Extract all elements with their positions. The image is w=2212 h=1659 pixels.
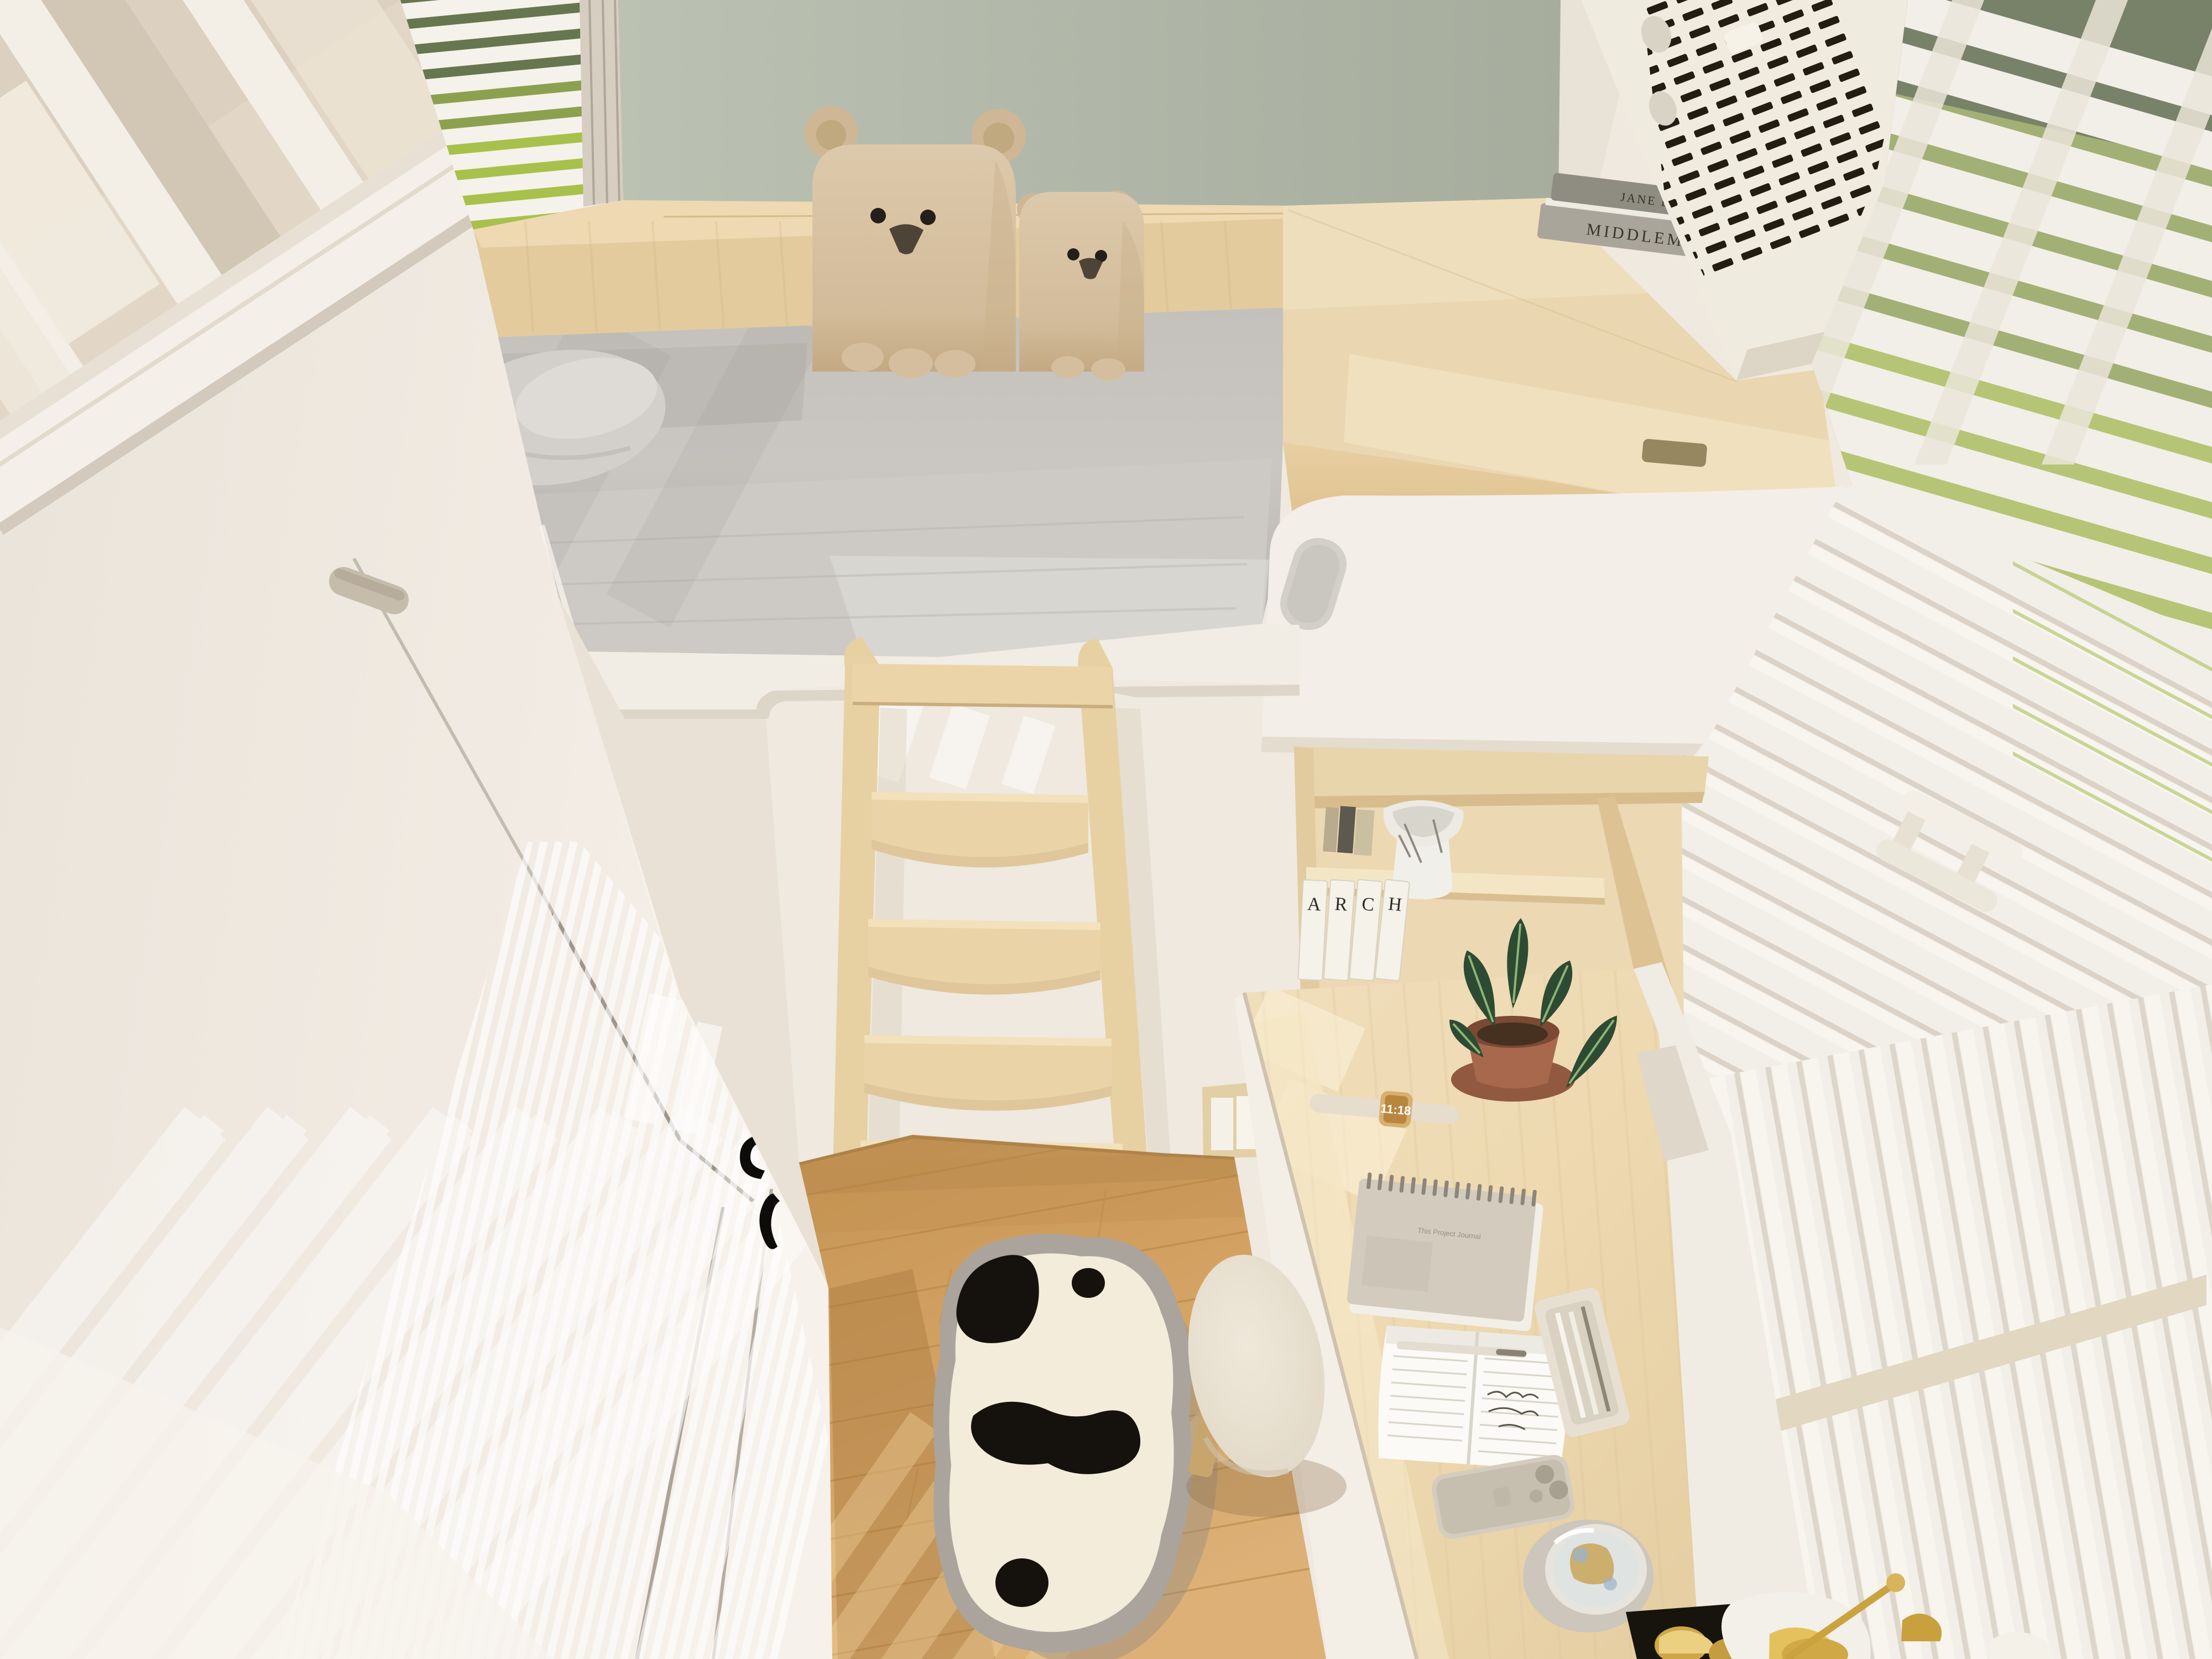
- svg-text:C: C: [1361, 894, 1375, 915]
- svg-text:H: H: [1387, 894, 1403, 915]
- svg-text:11:18: 11:18: [1380, 1102, 1411, 1118]
- svg-text:A: A: [1307, 894, 1322, 915]
- svg-text:R: R: [1334, 894, 1348, 915]
